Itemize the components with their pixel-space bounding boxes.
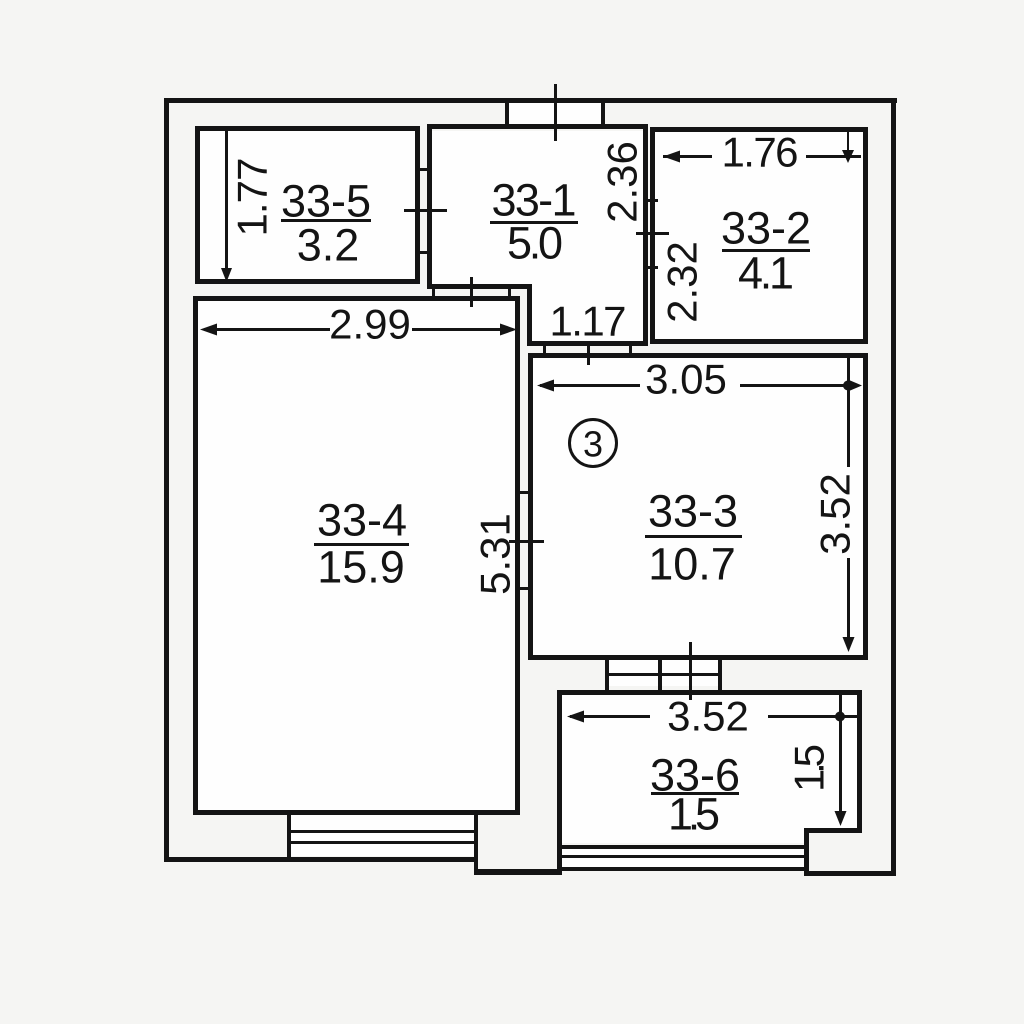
svg-text:3: 3 xyxy=(583,424,603,465)
svg-text:3.05: 3.05 xyxy=(645,356,727,403)
svg-text:5.31: 5.31 xyxy=(472,513,519,595)
svg-text:2.36: 2.36 xyxy=(599,141,646,223)
svg-text:1.5: 1.5 xyxy=(786,744,833,792)
svg-text:4.1: 4.1 xyxy=(738,248,794,299)
svg-text:10.7: 10.7 xyxy=(648,539,736,590)
svg-text:15.9: 15.9 xyxy=(317,542,405,593)
svg-text:3.52: 3.52 xyxy=(812,473,859,555)
svg-text:3.2: 3.2 xyxy=(297,220,360,271)
svg-text:5.0: 5.0 xyxy=(507,218,563,269)
svg-text:33-2: 33-2 xyxy=(721,203,811,254)
svg-text:1.17: 1.17 xyxy=(550,298,627,345)
svg-text:1.77: 1.77 xyxy=(229,158,276,237)
svg-text:33-4: 33-4 xyxy=(317,495,407,546)
svg-text:2.99: 2.99 xyxy=(329,301,411,348)
svg-text:2.32: 2.32 xyxy=(659,241,706,323)
svg-text:1.5: 1.5 xyxy=(668,789,720,840)
svg-text:33-3: 33-3 xyxy=(648,486,738,537)
svg-text:3.52: 3.52 xyxy=(667,693,749,740)
svg-text:1.76: 1.76 xyxy=(722,129,799,176)
